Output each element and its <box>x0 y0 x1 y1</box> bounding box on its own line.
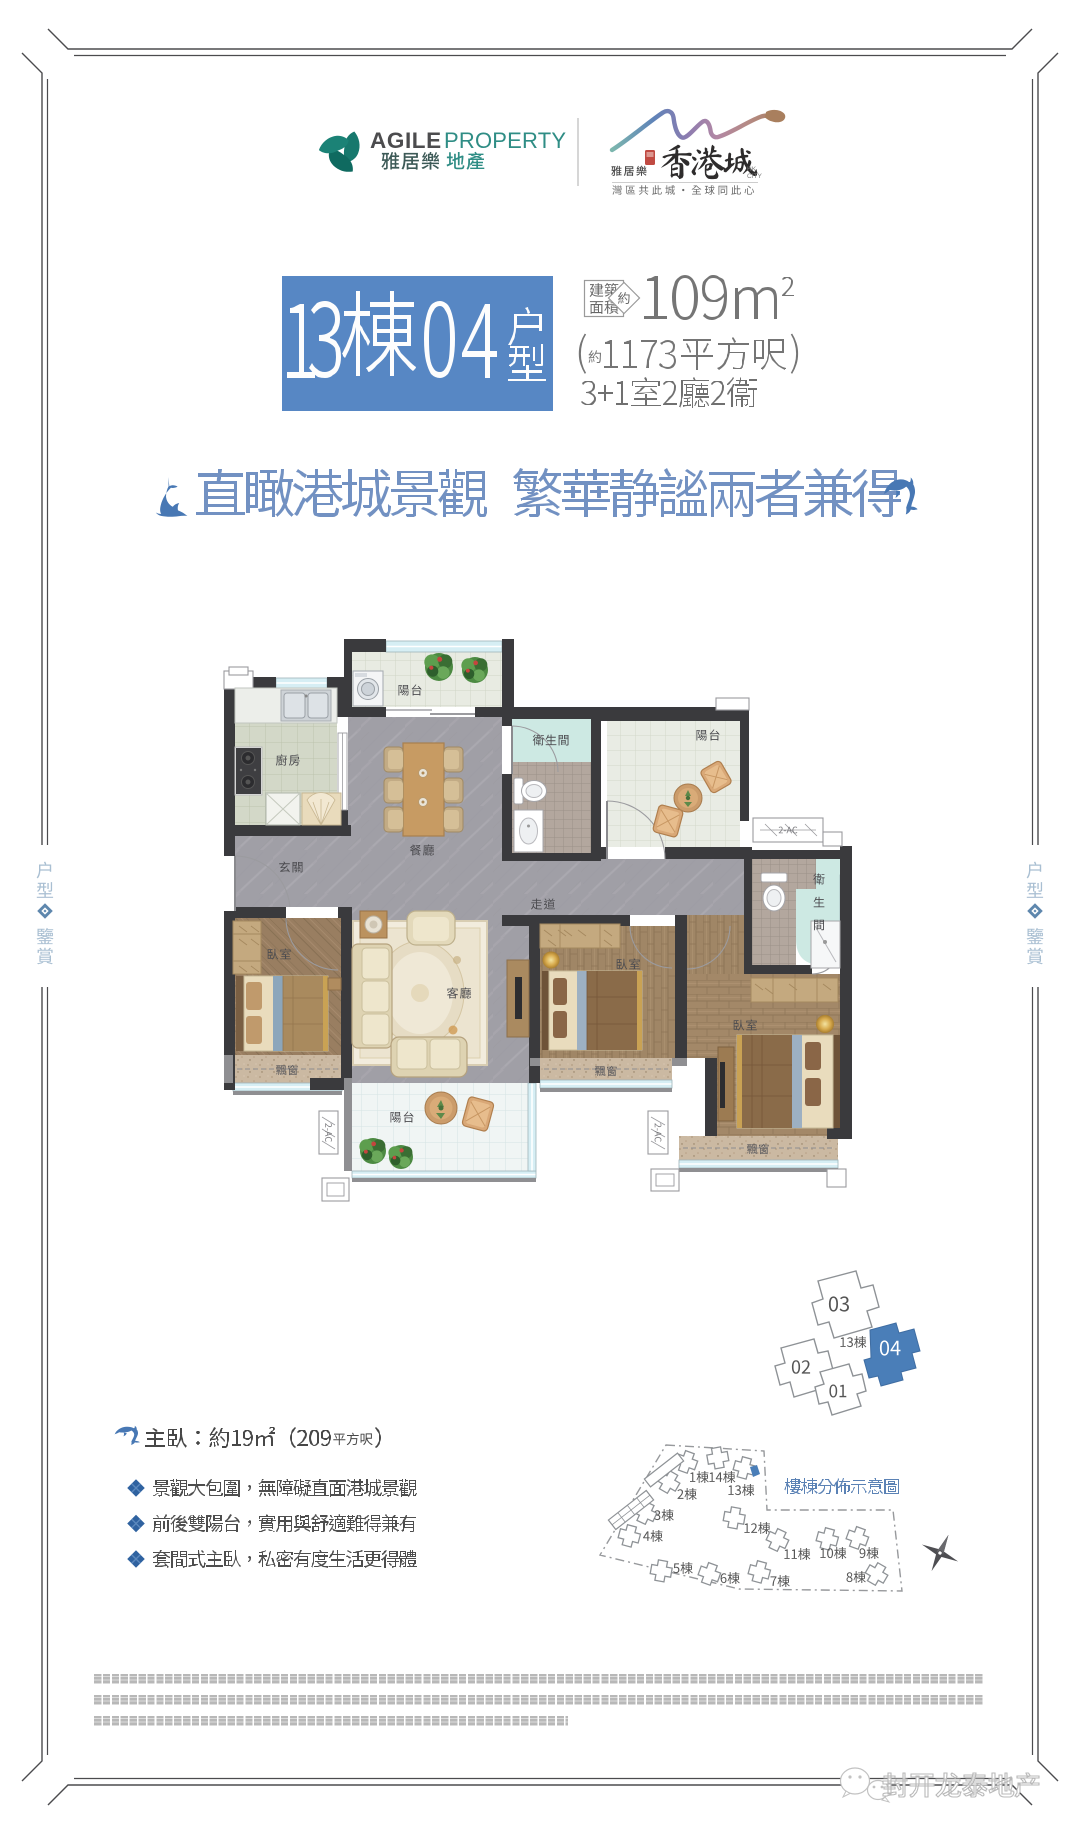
svg-text:AGILE: AGILE <box>370 128 442 153</box>
svg-text:HK: HK <box>747 166 757 173</box>
svg-text:CITY: CITY <box>747 173 762 180</box>
svg-text:PROPERTY: PROPERTY <box>444 128 566 153</box>
